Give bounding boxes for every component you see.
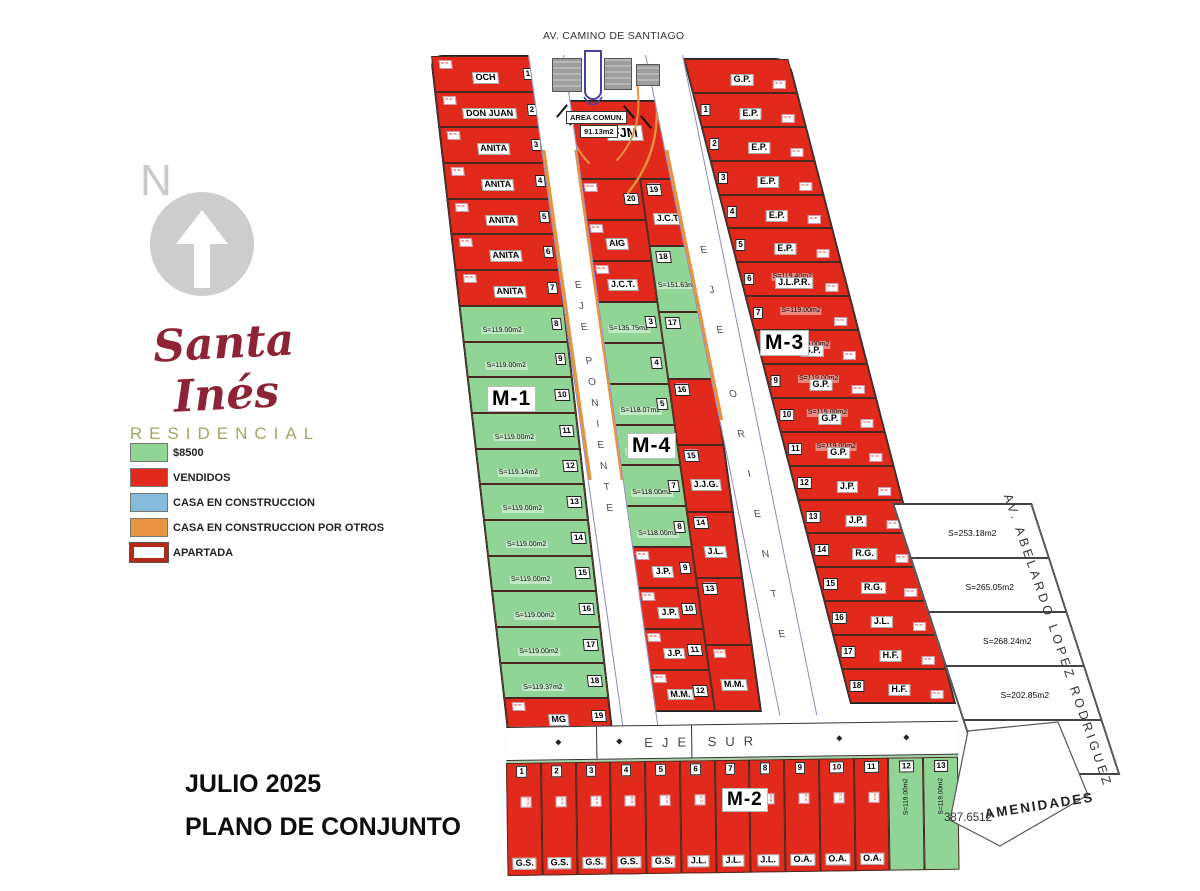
lot-mm: ≈≈M.M. [705,645,761,712]
lot-aig: ≈≈AIG [582,220,652,261]
lot-number: 7 [725,763,736,775]
lot-number: 14 [570,532,586,544]
measure-scribble: ≈≈ [791,148,804,157]
lot-owner-label: J.J.G. [682,474,729,492]
entrance-gate-left [552,58,582,92]
north-arrow-stem [194,240,210,288]
lot-11-gp: ≈≈S=119.00m2G.P.11 [781,432,894,466]
lot-number: 11 [864,761,879,773]
lot-number: 14 [814,544,829,556]
lot-number: 9 [679,562,691,574]
legend-item: CASA EN CONSTRUCCION POR OTROS [130,518,384,537]
lot-area: S=119.00m2 [499,640,579,658]
street-marker-icon: ◆ [836,733,842,742]
lot-number: 16 [579,603,595,615]
lot-area: S=119.00m2 [482,497,562,515]
lot-area: S=119.00m2 [474,426,554,444]
lot-number: 15 [683,450,700,462]
lot-6-anita: ≈≈ANITA6 [451,234,559,270]
lot-number: 5 [655,764,666,776]
avenue-camino-de-santiago-label: AV. CAMINO DE SANTIAGO [543,30,684,42]
lot-number: 7 [546,282,558,294]
measure-scribble: ≈≈ [905,588,918,597]
measure-scribble: ≈≈ [584,183,598,192]
lot-6-jlpr: ≈≈S=119.40m2J.L.P.R.6 [737,262,850,296]
measure-scribble: ≈≈ [521,797,532,808]
lot-8: S=118.00m28 [622,506,692,547]
lot-number: 8 [673,521,685,533]
lot-11: S=119.00m211 [472,413,580,449]
legend-swatch [130,543,168,562]
lot-10-oa: ≈≈O.A.10 [819,758,855,871]
lot-14: S=119.00m214 [484,520,592,556]
lot-owner-label: G.S. [613,851,646,869]
lot-number: 3 [718,172,728,184]
lot-12: S=119.00m212 [888,757,924,870]
lot-owner-label: G.S. [578,852,611,870]
measure-scribble: ≈≈ [512,702,526,711]
lot-3-gs: ≈≈G.S.3 [576,762,612,875]
lot-9-gp: ≈≈S=119.00m2G.P.9 [763,364,876,398]
lot-owner-label: AIG [585,233,649,251]
lot-number: 2 [709,138,719,150]
lot-number: 3 [586,765,597,777]
legend-item: CASA EN CONSTRUCCION [130,493,384,512]
street-name-letter: N [586,461,622,472]
measure-scribble: ≈≈ [817,249,830,258]
block-label-m2: M-2 [722,788,768,812]
lot-number: 11 [687,644,703,656]
lot-number: 5 [735,239,745,251]
lot-20: ≈≈20 [576,179,646,220]
lot-5-ep: ≈≈E.P.5 [728,228,841,262]
measure-scribble: ≈≈ [800,182,813,191]
measure-scribble: ≈≈ [852,385,865,394]
measure-scribble: ≈≈ [843,351,856,360]
lot-area: S=119.37m2 [503,676,583,694]
street-name-letter: E [561,280,597,291]
lot-number: 4 [621,764,632,776]
measure-scribble: ≈≈ [826,283,839,292]
lot-9-oa: ≈≈O.A.9 [784,759,820,872]
street-name-letter: T [589,482,625,493]
measure-scribble: ≈≈ [694,795,705,806]
legend-label: VENDIDOS [173,472,230,484]
lot-7: ≈≈S=119.00m27 [746,296,859,330]
legend-item: $8500 [130,443,384,462]
measure-scribble: ≈≈ [713,649,727,658]
lot-number: 12 [797,477,812,489]
measure-scribble: ≈≈ [799,793,810,804]
measure-scribble: ≈≈ [878,487,891,496]
lot-number: 12 [562,460,578,472]
street-name-letter: N [577,398,613,409]
street-name-letter: O [714,389,752,400]
lot-number: 1 [516,766,527,778]
lot-owner-label: G.S. [543,852,576,870]
lot-area: S=119.00m2 [890,778,923,820]
lot-number: 9 [555,353,567,365]
street-name-letter: T [755,589,793,600]
lot-number: 18 [655,251,672,263]
lot-jct: ≈≈J.C.T. [588,261,658,302]
street-divider [691,725,692,757]
measure-scribble: ≈≈ [653,674,667,683]
street-marker-icon: ◆ [903,732,909,741]
lot-number: 5 [656,398,668,410]
measure-scribble: ≈≈ [835,317,848,326]
legend-label: CASA EN CONSTRUCCION POR OTROS [173,522,384,534]
lot-area: S=119.00m2 [462,319,542,337]
lot-3-anita: ≈≈ANITA3 [439,127,547,163]
lot-1-ep: ≈≈E.P.1 [693,93,806,127]
entrance-pillar [584,50,602,100]
measure-scribble: ≈≈ [913,622,926,631]
street-name-letter: I [580,419,616,430]
lot-8-jl: ≈≈J.L.8 [749,759,785,872]
lot-13: ≈≈13 [696,578,752,645]
lot-area: S=119.00m2 [495,604,575,622]
measure-scribble: ≈≈ [459,238,473,247]
logo: Santa Inés RESIDENCIAL [100,318,350,444]
lot-number: 13 [702,583,719,595]
lot-18: S=119.37m218 [500,663,608,699]
measure-scribble: ≈≈ [808,215,821,224]
measure-scribble: ≈≈ [590,796,601,807]
street-name-letter: I [730,469,768,480]
lot-4-anita: ≈≈ANITA4 [443,163,551,199]
north-arrow-head [176,210,228,244]
measure-scribble: ≈≈ [647,633,661,642]
lot-area: S=119.14m2 [478,461,558,479]
area-comun-size: 91.13m2 [580,125,618,138]
lot-number: 17 [841,646,856,658]
lot-2-ep: ≈≈E.P.2 [702,127,815,161]
lot-number: 6 [542,246,554,258]
lot-9: S=119.00m29 [464,342,572,378]
street-name-letter: E [701,325,739,336]
lot-16-jl: ≈≈J.L.16 [824,601,937,635]
lot-number: 18 [849,680,864,692]
amenities-label: AMENIDADES [984,789,1096,821]
street-name-letter: O [574,377,610,388]
lot-number: 1 [700,104,710,116]
lot-5-gs: ≈≈G.S.5 [645,761,681,874]
block-m2-row: ≈≈G.S.1≈≈G.S.2≈≈G.S.3≈≈G.S.4≈≈G.S.5≈≈J.L… [506,757,960,876]
street-marker-icon: ◆ [555,737,561,746]
logo-subtitle: RESIDENCIAL [100,424,350,444]
lot-10-jp: ≈≈J.P.10 [634,588,704,629]
lot-number: 6 [744,273,754,285]
lot-area: S=119.00m2 [491,568,571,586]
street-name-letter: J [564,301,600,312]
legend-label: CASA EN CONSTRUCCION [173,497,315,509]
street-name-letter: E [685,245,723,256]
measure-scribble: ≈≈ [443,96,457,105]
lot-number: 16 [832,612,847,624]
block-label-m1: M-1 [487,386,536,412]
lot-6-jl: ≈≈J.L.6 [680,760,716,873]
lot-12-jp: ≈≈J.P.12 [789,466,902,500]
lot-number: 6 [690,763,701,775]
street-name-letter: N [747,549,785,560]
lot-number: 7 [753,307,763,319]
legend-item: APARTADA [130,543,384,562]
lot-number: 13 [806,511,821,523]
lot-number: 18 [587,675,603,687]
legend-item: VENDIDOS [130,468,384,487]
lot-number: 11 [559,425,575,437]
measure-scribble: ≈≈ [641,592,655,601]
measure-scribble: ≈≈ [868,792,879,803]
lot-3-ep: ≈≈E.P.3 [711,161,824,195]
area-comun-label: AREA COMUN. [566,111,627,124]
lot-owner-label: O.A. [821,849,854,867]
block-label-m3: M-3 [760,330,809,356]
lot-number: 12 [899,760,914,772]
lot-number: 20 [623,193,640,205]
street-eje-sur: EJE SUR ◆◆◆◆ [506,721,958,761]
lot-4: 4 [599,343,669,384]
north-arrow-icon [150,192,254,296]
legend-swatch [130,443,168,462]
lot-owner-label: G.S. [647,851,680,869]
plan-date: JULIO 2025 [185,770,461,799]
entrance-gate-right [604,58,632,90]
lot-11-oa: ≈≈O.A.11 [854,758,890,871]
lot-number: 10 [681,603,698,615]
measure-scribble: ≈≈ [463,274,477,283]
measure-scribble: ≈≈ [455,203,469,212]
lot-2-gs: ≈≈G.S.2 [541,762,577,875]
lot-number: 7 [668,480,680,492]
street-marker-icon: ◆ [616,736,622,745]
lot-number: 15 [823,578,838,590]
plan-footer: JULIO 2025 PLANO DE CONJUNTO [185,770,461,842]
lot-number: 8 [550,318,562,330]
lot-number: 9 [795,762,806,774]
lot-owner-label: J.L. [752,850,785,868]
lot-7-jl: ≈≈J.L.7 [715,760,751,873]
lot-4-gs: ≈≈G.S.4 [610,761,646,874]
legend-swatch [130,493,168,512]
lot-owner-label: J.C.T. [590,274,654,292]
street-name-letter: E [583,440,619,451]
lot-owner-label: M.M. [710,674,757,692]
measure-scribble: ≈≈ [922,656,935,665]
measure-scribble: ≈≈ [589,224,603,233]
measure-scribble: ≈≈ [782,114,795,123]
legend-label: APARTADA [173,547,233,559]
measure-scribble: ≈≈ [451,167,465,176]
lot-number: 2 [551,765,562,777]
lot-7: S=118.00m27 [616,465,686,506]
lot-area: S=119.00m2 [486,533,566,551]
block-label-m4: M-4 [627,433,676,459]
measure-scribble: ≈≈ [595,265,609,274]
lot-number: 16 [674,384,691,396]
lot-number: 17 [664,317,681,329]
measure-scribble: ≈≈ [833,793,844,804]
lot-number: 4 [650,357,662,369]
lot-owner-label: O.A. [786,849,819,867]
lot-owner-label: J.L. [692,541,739,559]
measure-scribble: ≈≈ [861,419,874,428]
lot-number: 10 [554,389,570,401]
lot-number: 10 [779,409,794,421]
lot-11-jp: ≈≈J.P.11 [639,629,709,670]
measure-scribble: ≈≈ [439,60,453,69]
lot-number: 17 [583,639,599,651]
plan-title: PLANO DE CONJUNTO [185,813,461,842]
lot-7-anita: ≈≈ANITA7 [456,270,564,306]
legend: $8500VENDIDOSCASA EN CONSTRUCCIONCASA EN… [130,443,384,568]
lot-2-donjuan: ≈≈DON JUAN2 [435,92,543,128]
street-name-letter: R [722,429,760,440]
lot-number: 13 [934,760,949,772]
street-eje-sur-label: EJE SUR [644,733,762,750]
lot-number: 14 [692,517,709,529]
lot-16: S=119.00m216 [492,591,600,627]
entrance-booth [636,64,660,86]
north-letter: N [140,156,172,206]
lot-17: S=119.00m217 [496,627,604,663]
measure-scribble: ≈≈ [896,554,909,563]
lot-owner-label: G.S. [508,853,541,871]
lot-12-mm: ≈≈M.M.12 [645,670,715,711]
measure-scribble: ≈≈ [773,80,786,89]
lot-number: 19 [591,710,607,722]
lot-owner-label: O.A. [856,848,889,866]
measure-scribble: ≈≈ [870,453,883,462]
lot-number: 9 [771,375,781,387]
lot-number: 5 [538,211,550,223]
lot-1-gs: ≈≈G.S.1 [506,763,542,876]
lot-number: 3 [645,316,657,328]
lot-12: S=119.14m212 [476,449,584,485]
amenities-ref-number: 387.6512 [944,812,992,824]
lot-10-gp: ≈≈S=119.00m2G.P.10 [772,398,885,432]
measure-scribble: ≈≈ [931,690,944,699]
street-divider [596,727,597,759]
street-name-letter: E [763,629,801,640]
lot-owner-label: J.L. [717,850,750,868]
lot-5-anita: ≈≈ANITA5 [447,199,555,235]
lot-number: 12 [692,685,709,697]
measure-scribble: ≈≈ [625,795,636,806]
lot-8: S=119.00m28 [460,306,568,342]
lot-18-hf: ≈≈H.F.18 [842,669,955,703]
lot-number: 19 [646,184,663,196]
lot-number: 4 [727,206,737,218]
lot-3: S=135.75m23 [593,302,663,343]
lot-area: S=119.00m2 [466,354,546,372]
site-plan-page: N Santa Inés RESIDENCIAL $8500VENDIDOSCA… [0,0,1200,891]
lot-17-hf: ≈≈H.F.17 [833,635,946,669]
street-name-letter: E [567,322,603,333]
lot-number: 13 [566,496,582,508]
lot-15: S=119.00m215 [488,556,596,592]
lot-14-jl: ≈≈J.L.14 [687,512,743,579]
lot-15-jjg: ≈≈J.J.G.15 [677,445,733,512]
measure-scribble: ≈≈ [635,551,649,560]
lot-13: S=119.00m213 [480,484,588,520]
lot-4-ep: ≈≈E.P.4 [719,195,832,229]
logo-name: Santa Inés [98,312,353,427]
lot-number: 11 [788,443,802,455]
lot-owner-label: J.L. [682,850,715,868]
legend-label: $8500 [173,447,204,459]
lot-number: 15 [574,567,590,579]
street-name-letter: E [738,509,776,520]
lot-gp: ≈≈G.P. [684,59,797,93]
lot-number: 10 [829,761,844,773]
measure-scribble: ≈≈ [447,131,461,140]
street-name-letter: E [592,503,628,514]
lot-5: S=118.07m25 [605,384,675,425]
legend-swatch [130,468,168,487]
measure-scribble: ≈≈ [555,796,566,807]
lot-number: 8 [760,762,771,774]
measure-scribble: ≈≈ [660,795,671,806]
lot-9-jp: ≈≈J.P.9 [628,547,698,588]
lot-1-och: ≈≈OCH1 [431,56,539,92]
street-name-letter: P [571,356,607,367]
street-name-letter: J [693,285,731,296]
lot-15-rg: ≈≈R.G.15 [816,567,929,601]
legend-swatch [130,518,168,537]
